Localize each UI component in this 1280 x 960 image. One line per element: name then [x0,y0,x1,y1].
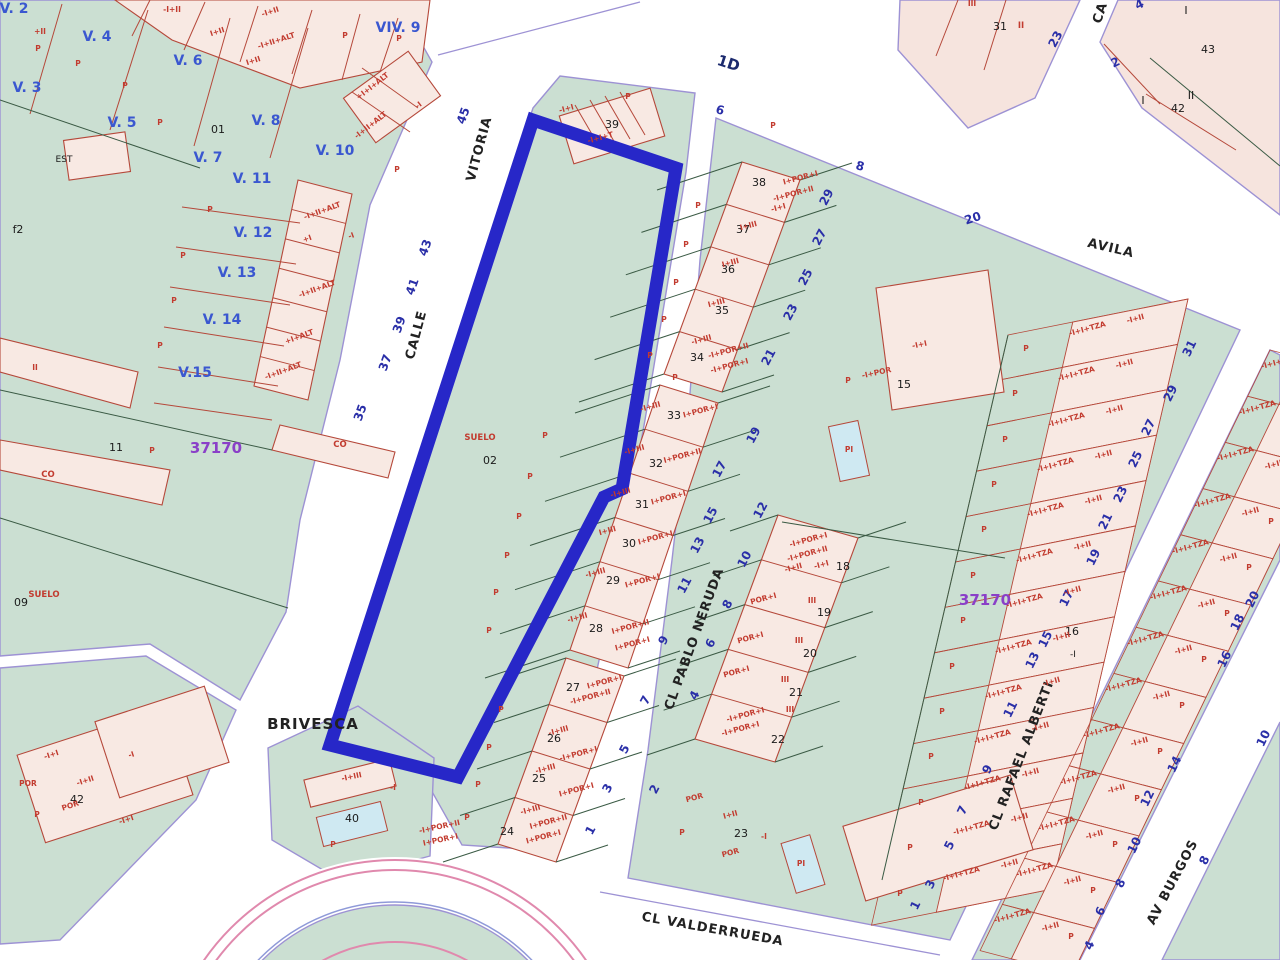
map-label: -I [761,832,767,841]
map-label: 37 [376,352,395,372]
map-label: P [672,373,678,382]
map-label: 33 [667,409,681,422]
map-label: P [498,705,504,714]
map-label: 41 [403,276,422,296]
map-label: P [342,31,348,40]
map-label: 15 [897,378,911,391]
map-label: P [1134,794,1140,803]
map-label: P [991,480,997,489]
map-label: 31 [635,498,649,511]
map-label: V.15 [178,365,212,381]
map-label: I [1184,4,1187,17]
map-label: P [394,165,400,174]
map-label: 09 [14,596,28,609]
map-label: P [493,588,499,597]
map-label: 45 [454,105,473,125]
map-label: P [981,525,987,534]
map-label: V. 13 [218,265,257,281]
map-label: 20 [803,647,817,660]
street-name-label: 1D [715,51,742,75]
map-label: P [673,278,679,287]
cadastral-map: CALLEVITORIAAVILACL PABLO NERUDACL RAFAE… [0,0,1280,960]
map-label: P [695,201,701,210]
map-label: 32 [649,457,663,470]
map-label: P [486,626,492,635]
map-label: +II [34,27,46,36]
map-label: II [1188,89,1195,102]
map-label: V. 7 [194,150,223,166]
map-label: P [661,315,667,324]
map-label: PI [845,445,853,454]
map-label: POR [19,779,37,788]
map-label: P [625,92,631,101]
map-label: 30 [622,537,636,550]
map-label: 35 [351,402,370,422]
map-label: P [1201,655,1207,664]
map-label: P [647,351,653,360]
map-label: V. 10 [316,143,355,159]
map-label: 19 [817,606,831,619]
street-name-label: CL VALDERRUEDA [640,910,784,950]
map-label: P [1090,886,1096,895]
map-label: -I [390,783,396,792]
map-label: 28 [589,622,603,635]
map-label: 40 [345,812,359,825]
map-label: P [683,240,689,249]
map-label: 18 [836,560,850,573]
map-label: III [808,596,817,605]
map-label: P [516,512,522,521]
map-label: P [845,376,851,385]
map-label: 7 [637,693,653,707]
map-label: P [527,472,533,481]
map-label: P [1023,344,1029,353]
map-label: P [122,81,128,90]
map-label: 38 [752,176,766,189]
map-label: 43 [1201,43,1215,56]
map-label: P [960,616,966,625]
map-label: P [1068,932,1074,941]
street-name-label: CALLE [403,309,430,361]
map-label: 27 [566,681,580,694]
map-label: P [504,551,510,560]
map-label: 21 [789,686,803,699]
map-label: III [781,675,790,684]
map-label: P [1246,563,1252,572]
map-label: V. 12 [234,225,273,241]
parcel-division-line [443,844,498,862]
map-label: -I+II [163,5,181,14]
map-label: V. 8 [252,113,281,129]
map-label: III [786,705,795,714]
parcel-division-line [590,752,642,769]
map-label: P [939,707,945,716]
map-label: 1 [582,823,598,837]
map-label: P [907,843,913,852]
map-label: P [949,662,955,671]
map-label: 43 [416,237,435,257]
map-label: 37170 [959,591,1011,609]
street-name-label: VITORIA [464,115,496,183]
map-label: 39 [390,314,409,334]
map-label: P [475,780,481,789]
map-label: V. 11 [233,171,272,187]
map-label: II [1018,21,1024,31]
map-label: 6 [714,102,726,118]
boundary-line [438,2,640,55]
map-label: P [1002,435,1008,444]
map-label: P [34,810,40,819]
map-label: P [1112,840,1118,849]
parcel-division-line [573,799,625,816]
parcel-topright-42-43 [1100,0,1280,215]
map-label: III [795,636,804,645]
map-label: BRIVESCA [267,715,359,733]
map-label: CO [41,470,54,480]
parcel-topright-31 [898,0,1080,128]
map-label: P [928,752,934,761]
map-label: V. 4 [83,29,112,45]
map-label: P [1012,389,1018,398]
map-label: III [968,0,977,8]
map-label: P [1224,609,1230,618]
map-label: II [32,363,38,372]
map-label: P [464,813,470,822]
map-label: SUELO [28,590,59,600]
map-label: P [75,59,81,68]
map-label: P [1268,517,1274,526]
map-label: P [770,121,776,130]
map-label: V. 2 [0,1,28,17]
map-label: PI [797,859,805,868]
street-name-label: AVILA [1086,236,1136,261]
parcel-division-line [556,845,608,862]
map-label: 24 [500,825,514,838]
map-label: P [207,205,213,214]
building-15 [876,270,1004,410]
map-label: 39 [605,118,619,131]
map-label: 22 [771,733,785,746]
map-label: V. 14 [203,312,242,328]
map-label: 8 [854,158,866,174]
map-label: V. 5 [108,115,137,131]
map-label: CO [333,440,346,450]
map-label: P [157,118,163,127]
map-label: 5 [616,742,632,756]
map-label: I [1141,94,1144,107]
map-label: 3 [599,781,615,795]
map-label: 29 [606,574,620,587]
map-label: P [35,44,41,53]
map-label: EST [56,155,73,165]
map-canvas: CALLEVITORIAAVILACL PABLO NERUDACL RAFAE… [0,0,1280,960]
map-label: 31 [993,20,1007,33]
map-label: P [149,446,155,455]
map-label: P [396,34,402,43]
map-label: P [171,296,177,305]
map-label: V. 6 [174,53,203,69]
map-label: P [918,798,924,807]
map-label: 34 [690,351,704,364]
map-label: P [542,431,548,440]
map-label: 37170 [190,439,242,457]
map-label: 11 [109,441,123,454]
map-label: P [486,743,492,752]
building-est [64,132,131,180]
map-label: P [970,571,976,580]
map-label: P [180,251,186,260]
map-label: 02 [483,454,497,467]
map-label: V. 3 [13,80,42,96]
map-label: 42 [1171,102,1185,115]
map-label: P [157,341,163,350]
map-label: -I [1070,650,1076,660]
map-label: f2 [13,223,24,236]
map-label: P [330,840,336,849]
map-label: 01 [211,123,225,136]
map-label: 23 [734,827,748,840]
map-label: P [1179,701,1185,710]
map-label: SUELO [464,433,495,443]
map-label: P [897,889,903,898]
map-label: P [679,828,685,837]
map-label: P [1157,747,1163,756]
